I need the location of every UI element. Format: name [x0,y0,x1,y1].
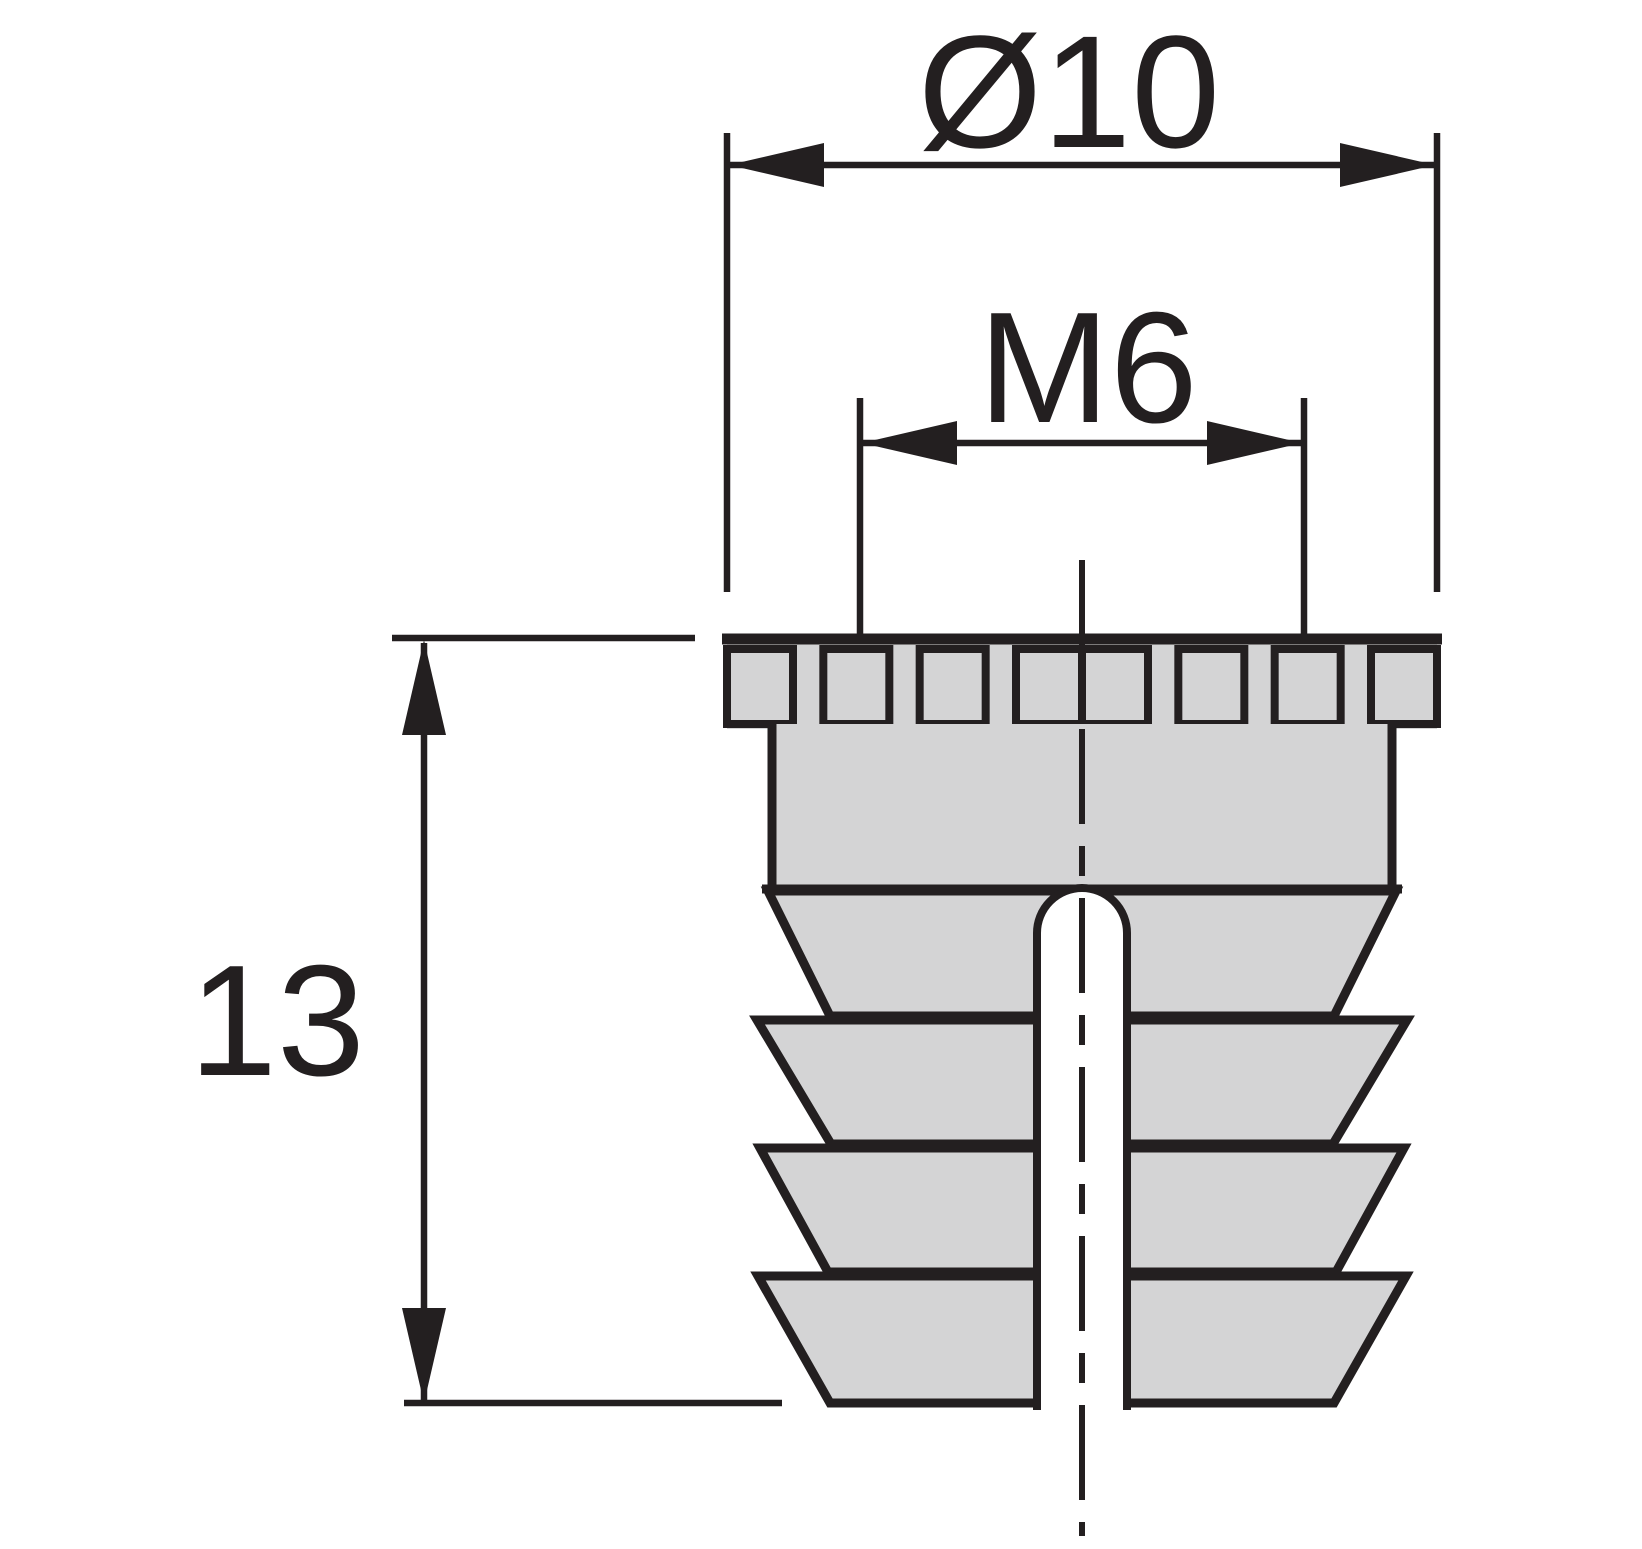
thread-label: M6 [978,280,1198,456]
drawing-canvas: Ø10 M6 13 [0,0,1642,1544]
flange-tooth [1275,649,1341,724]
flange-tooth [1016,649,1082,724]
arrowhead-left [729,143,824,187]
arrowhead-right [1207,421,1302,465]
dimension-length: 13 [189,638,782,1403]
flange-tooth [1371,649,1437,724]
arrowhead-bottom [402,1308,446,1403]
diameter-label: Ø10 [918,2,1220,181]
technical-drawing: Ø10 M6 13 [0,0,1642,1544]
flange-tooth [1082,649,1148,724]
length-label: 13 [189,933,365,1109]
flange-tooth [727,649,793,724]
arrowhead-right [1340,143,1435,187]
flange-tooth [1178,649,1244,724]
arrowhead-left [862,421,957,465]
flange-tooth [920,649,986,724]
arrowhead-top [402,640,446,735]
flange-tooth [823,649,889,724]
